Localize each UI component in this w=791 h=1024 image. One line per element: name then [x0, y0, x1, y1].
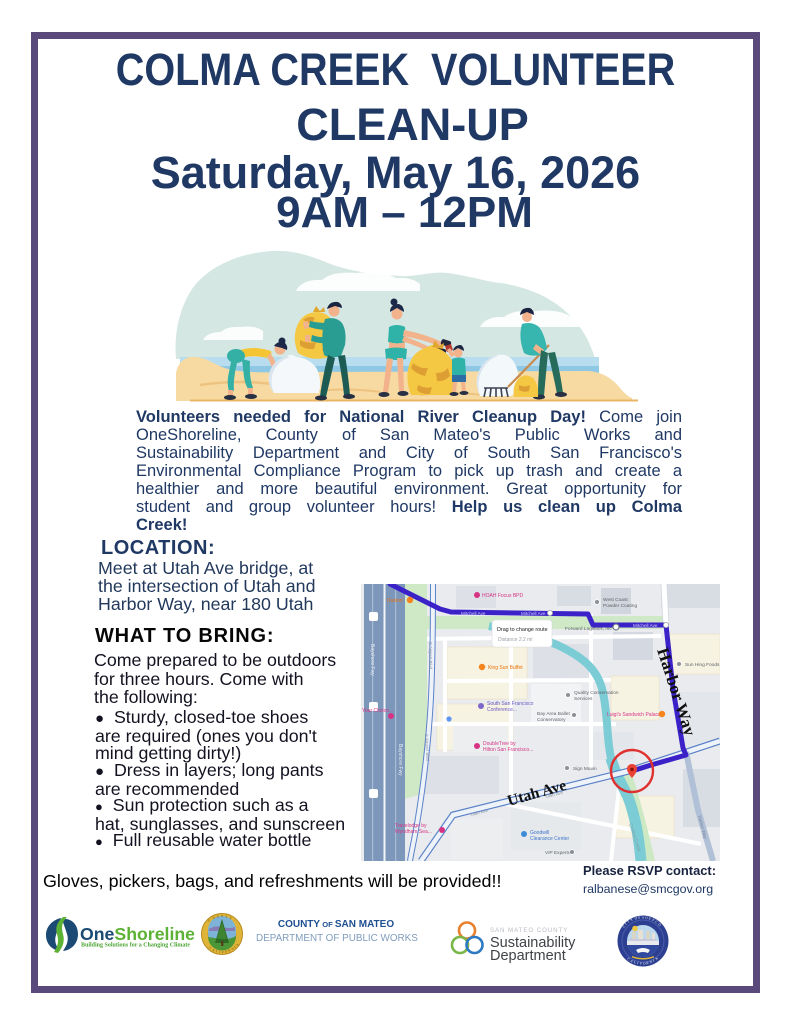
svg-text:Department: Department: [490, 948, 566, 964]
svg-text:OneShoreline: OneShoreline: [80, 924, 194, 944]
svg-text:Drag to change route: Drag to change route: [497, 627, 548, 633]
svg-text:SAN MATEO COUNTY: SAN MATEO COUNTY: [490, 927, 568, 934]
svg-text:HOAH Focus BPD: HOAH Focus BPD: [482, 593, 524, 599]
svg-text:Sign Mavin: Sign Mavin: [573, 766, 597, 772]
svg-text:Hilton San Francisco...: Hilton San Francisco...: [483, 747, 533, 753]
svg-text:Bayshore Fwy: Bayshore Fwy: [397, 744, 403, 776]
svg-text:VIP Experts: VIP Experts: [545, 850, 571, 856]
svg-text:Mitchell Ave: Mitchell Ave: [521, 611, 546, 616]
svg-text:Dunkin': Dunkin': [387, 598, 404, 604]
svg-text:West Coast: West Coast: [603, 597, 628, 603]
svg-text:Distance 2.2 mi: Distance 2.2 mi: [498, 637, 532, 643]
svg-text:S Airport Blvd: S Airport Blvd: [428, 642, 433, 670]
svg-text:Quality Conservation: Quality Conservation: [574, 690, 619, 696]
svg-text:Clearance Center: Clearance Center: [530, 836, 570, 842]
svg-text:Services: Services: [574, 696, 593, 702]
svg-text:Forward Logistics, Inc: Forward Logistics, Inc: [565, 626, 612, 632]
svg-text:Mitchell Ave: Mitchell Ave: [633, 623, 658, 628]
svg-text:Bay Area Ballet: Bay Area Ballet: [537, 711, 570, 717]
svg-text:Bayshore Fwy: Bayshore Fwy: [369, 644, 375, 676]
svg-text:Powder Coating: Powder Coating: [603, 603, 637, 609]
svg-text:Luigi's Sandwich Palace: Luigi's Sandwich Palace: [607, 712, 661, 718]
svg-text:Conference...: Conference...: [487, 707, 517, 713]
svg-text:Sun Hing Foods: Sun Hing Foods: [685, 662, 720, 668]
svg-text:Conservatory: Conservatory: [537, 717, 566, 723]
svg-text:Mitchell Ave: Mitchell Ave: [461, 611, 486, 616]
svg-text:Wyndham Sea...: Wyndham Sea...: [395, 829, 432, 835]
svg-text:S: S: [642, 915, 644, 919]
svg-text:King Sun Buffet: King Sun Buffet: [488, 665, 523, 671]
svg-text:Your Choice...: Your Choice...: [362, 708, 393, 714]
svg-text:Building Solutions for a Chang: Building Solutions for a Changing Climat…: [81, 943, 190, 949]
